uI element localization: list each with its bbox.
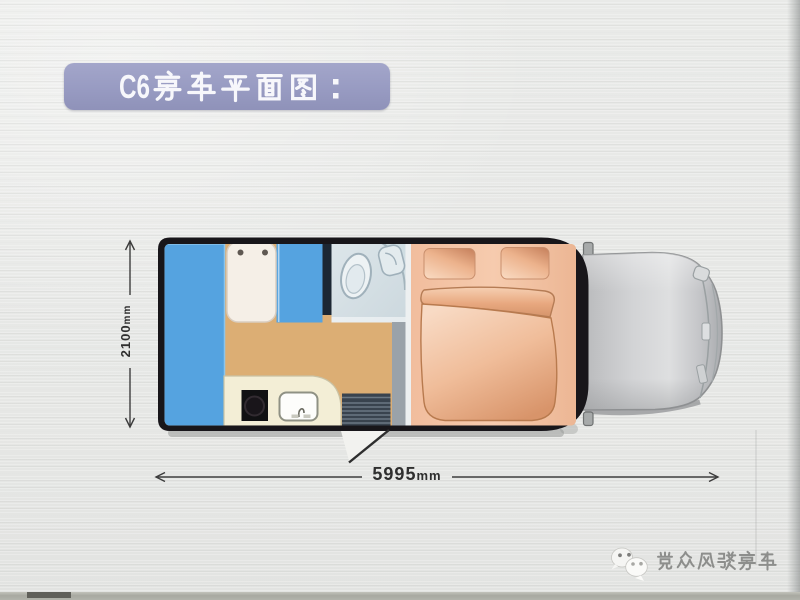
- svg-text:2100mm: 2100mm: [118, 305, 133, 358]
- svg-text:5995mm: 5995mm: [372, 464, 441, 484]
- svg-text:C6: C6: [119, 68, 150, 105]
